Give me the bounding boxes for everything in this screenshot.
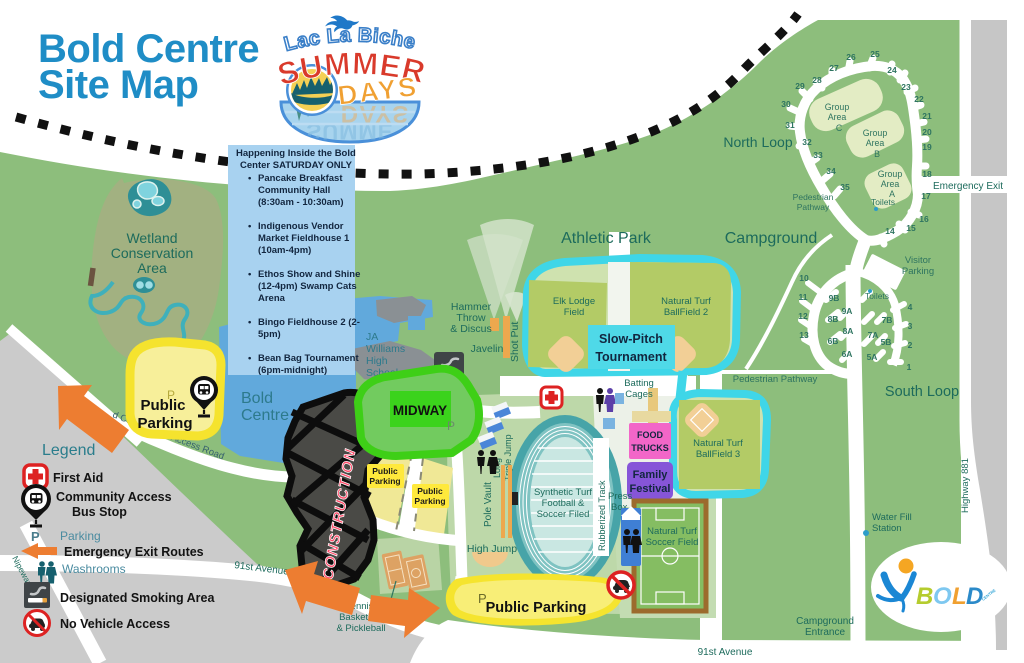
svg-text:Javelin: Javelin (471, 343, 504, 355)
svg-text:Campground: Campground (725, 230, 818, 247)
svg-text:29: 29 (795, 81, 805, 91)
svg-text:Centre: Centre (241, 407, 289, 424)
svg-text:Emergency Exit: Emergency Exit (933, 181, 1003, 192)
svg-text:& Discus: & Discus (450, 323, 491, 335)
svg-text:Emergency Exit Routes: Emergency Exit Routes (64, 545, 204, 559)
svg-text:10: 10 (799, 273, 809, 283)
svg-text:35: 35 (840, 182, 850, 192)
svg-text:Cages: Cages (625, 389, 653, 400)
svg-text:C: C (836, 123, 843, 133)
svg-text:Area: Area (828, 112, 847, 122)
svg-text:Pole Vault: Pole Vault (483, 482, 494, 527)
svg-text:30: 30 (781, 99, 791, 109)
svg-text:Slow-Pitch: Slow-Pitch (599, 332, 663, 346)
svg-text:22: 22 (914, 94, 924, 104)
svg-text:Washrooms: Washrooms (62, 562, 126, 576)
svg-text:BallField 3: BallField 3 (696, 449, 740, 460)
svg-text:Bus Stop: Bus Stop (72, 505, 127, 519)
svg-text:Area: Area (866, 138, 885, 148)
svg-text:27: 27 (829, 63, 839, 73)
svg-text:Williams: Williams (366, 343, 405, 355)
svg-text:17: 17 (921, 191, 931, 201)
svg-text:Pancake Breakfast: Pancake Breakfast (258, 173, 343, 184)
svg-text:(6pm-midnight): (6pm-midnight) (258, 365, 327, 376)
svg-text:High: High (366, 355, 388, 367)
svg-text:Festival: Festival (630, 483, 671, 495)
svg-text:B: B (874, 149, 880, 159)
svg-text:20: 20 (922, 127, 932, 137)
svg-text:Community Hall: Community Hall (258, 185, 330, 196)
svg-text:Entrance: Entrance (805, 627, 845, 638)
svg-text:Legend: Legend (42, 442, 95, 459)
svg-text:23: 23 (901, 82, 911, 92)
svg-text:P: P (31, 529, 40, 544)
svg-text:Parking: Parking (137, 415, 192, 432)
svg-text:South Loop: South Loop (885, 384, 959, 400)
svg-text:Center SATURDAY ONLY: Center SATURDAY ONLY (240, 160, 353, 171)
svg-text:(12-4pm) Swamp Cats: (12-4pm) Swamp Cats (258, 281, 357, 292)
svg-text:Athletic Park: Athletic Park (561, 230, 652, 247)
svg-text:5pm): 5pm) (258, 329, 281, 340)
svg-text:(10am-4pm): (10am-4pm) (258, 245, 311, 256)
svg-text:Bold: Bold (241, 390, 273, 407)
svg-text:Shot Put: Shot Put (509, 322, 521, 362)
svg-text:High Jump: High Jump (467, 543, 517, 555)
svg-text:Natural Turf: Natural Turf (661, 296, 711, 307)
svg-text:No Vehicle Access: No Vehicle Access (60, 617, 170, 631)
svg-text:Public: Public (417, 486, 443, 496)
svg-text:21: 21 (922, 111, 932, 121)
svg-text:Pedestrian Pathway: Pedestrian Pathway (733, 374, 818, 385)
svg-text:Water Fill: Water Fill (872, 512, 912, 523)
svg-text:7A: 7A (868, 330, 879, 340)
svg-text:Natural Turf: Natural Turf (647, 526, 697, 537)
svg-text:Family: Family (633, 469, 669, 481)
svg-text:Campground: Campground (796, 616, 854, 627)
svg-text:Ethos Show and Shine: Ethos Show and Shine (258, 269, 360, 280)
svg-text:18: 18 (922, 169, 932, 179)
svg-text:TRUCKS: TRUCKS (631, 443, 669, 453)
svg-text:28: 28 (812, 75, 822, 85)
svg-text:24: 24 (887, 65, 897, 75)
svg-text:Public Parking: Public Parking (486, 600, 587, 616)
svg-text:First Aid: First Aid (53, 471, 103, 485)
svg-text:Press: Press (608, 491, 633, 502)
svg-text:Toilets: Toilets (865, 291, 889, 301)
svg-text:5B: 5B (881, 337, 892, 347)
svg-text:9A: 9A (842, 306, 853, 316)
svg-text:MIDWAY: MIDWAY (393, 403, 447, 418)
svg-text:Field: Field (564, 307, 585, 318)
svg-text:14: 14 (885, 226, 895, 236)
svg-text:Bean Bag Tournament: Bean Bag Tournament (258, 353, 359, 364)
svg-text:31: 31 (785, 120, 795, 130)
svg-text:BallField 2: BallField 2 (664, 307, 708, 318)
svg-text:Pathway: Pathway (797, 202, 830, 212)
svg-text:13: 13 (799, 330, 809, 340)
svg-text:16: 16 (919, 214, 929, 224)
svg-text:8B: 8B (828, 314, 839, 324)
svg-text:Bingo Fieldhouse 2 (2-: Bingo Fieldhouse 2 (2- (258, 317, 360, 328)
svg-text:Soccer Field: Soccer Field (646, 537, 699, 548)
svg-text:3: 3 (908, 321, 913, 331)
svg-text:Wetland: Wetland (126, 230, 177, 246)
svg-text:33: 33 (813, 150, 823, 160)
svg-text:Site Map: Site Map (38, 63, 198, 107)
svg-text:Rubberized Track: Rubberized Track (597, 480, 607, 551)
svg-text:Tournament: Tournament (595, 350, 667, 364)
svg-text:Soccer Filed: Soccer Filed (537, 509, 590, 520)
svg-text:FOOD: FOOD (637, 430, 663, 440)
svg-text:North Loop: North Loop (723, 134, 792, 150)
svg-text:6B: 6B (828, 336, 839, 346)
svg-text:11: 11 (799, 292, 808, 302)
svg-text:Parking: Parking (60, 529, 101, 543)
svg-text:9B: 9B (829, 293, 840, 303)
svg-text:8A: 8A (843, 326, 854, 336)
svg-text:O: O (933, 583, 952, 610)
svg-text:Happening Inside the Bold: Happening Inside the Bold (236, 148, 356, 159)
svg-text:2: 2 (908, 340, 913, 350)
svg-text:1: 1 (907, 362, 912, 372)
svg-text:Group: Group (825, 102, 850, 112)
svg-text:5A: 5A (867, 352, 878, 362)
svg-text:Arena: Arena (258, 293, 286, 304)
svg-text:4: 4 (908, 302, 913, 312)
svg-text:Station: Station (872, 523, 902, 534)
svg-text:32: 32 (802, 137, 812, 147)
svg-text:Synthetic Turf: Synthetic Turf (534, 487, 592, 498)
svg-text:Public: Public (140, 397, 185, 414)
svg-text:Group: Group (878, 169, 903, 179)
svg-text:Parking: Parking (414, 496, 445, 506)
svg-text:Parking: Parking (369, 476, 400, 486)
svg-text:Indigenous Vendor: Indigenous Vendor (258, 221, 344, 232)
svg-text:26: 26 (846, 52, 856, 62)
svg-text:Conservation: Conservation (111, 245, 194, 261)
svg-text:Batting: Batting (624, 378, 654, 389)
svg-text:12: 12 (798, 311, 808, 321)
svg-text:Highway 881: Highway 881 (960, 458, 971, 513)
svg-text:Designated Smoking Area: Designated Smoking Area (60, 591, 215, 605)
svg-text:Natural Turf: Natural Turf (693, 438, 743, 449)
svg-text:& Pickleball: & Pickleball (336, 623, 385, 634)
svg-text:Public: Public (372, 466, 398, 476)
svg-text:L: L (952, 583, 967, 610)
svg-text:Pedestrian: Pedestrian (793, 192, 834, 202)
svg-text:25: 25 (870, 49, 880, 59)
svg-text:Market Fieldhouse 1: Market Fieldhouse 1 (258, 233, 350, 244)
svg-text:Group: Group (863, 128, 888, 138)
svg-text:(8:30am - 10:30am): (8:30am - 10:30am) (258, 197, 344, 208)
svg-text:B: B (916, 583, 933, 610)
svg-text:Toilets: Toilets (871, 197, 895, 207)
svg-text:Community Access: Community Access (56, 490, 172, 504)
svg-text:19: 19 (922, 142, 932, 152)
svg-text:34: 34 (826, 166, 836, 176)
svg-text:JA: JA (366, 331, 378, 343)
svg-text:7B: 7B (882, 315, 893, 325)
svg-text:91st Avenue: 91st Avenue (698, 647, 753, 658)
svg-text:Parking: Parking (902, 266, 934, 277)
svg-text:P: P (447, 419, 455, 433)
svg-text:Area: Area (137, 260, 167, 276)
svg-text:Area: Area (881, 179, 900, 189)
svg-text:6A: 6A (842, 349, 853, 359)
svg-text:Football &: Football & (542, 498, 585, 509)
svg-text:15: 15 (906, 223, 916, 233)
svg-text:Elk Lodge: Elk Lodge (553, 296, 595, 307)
svg-text:Visitor: Visitor (905, 255, 931, 266)
